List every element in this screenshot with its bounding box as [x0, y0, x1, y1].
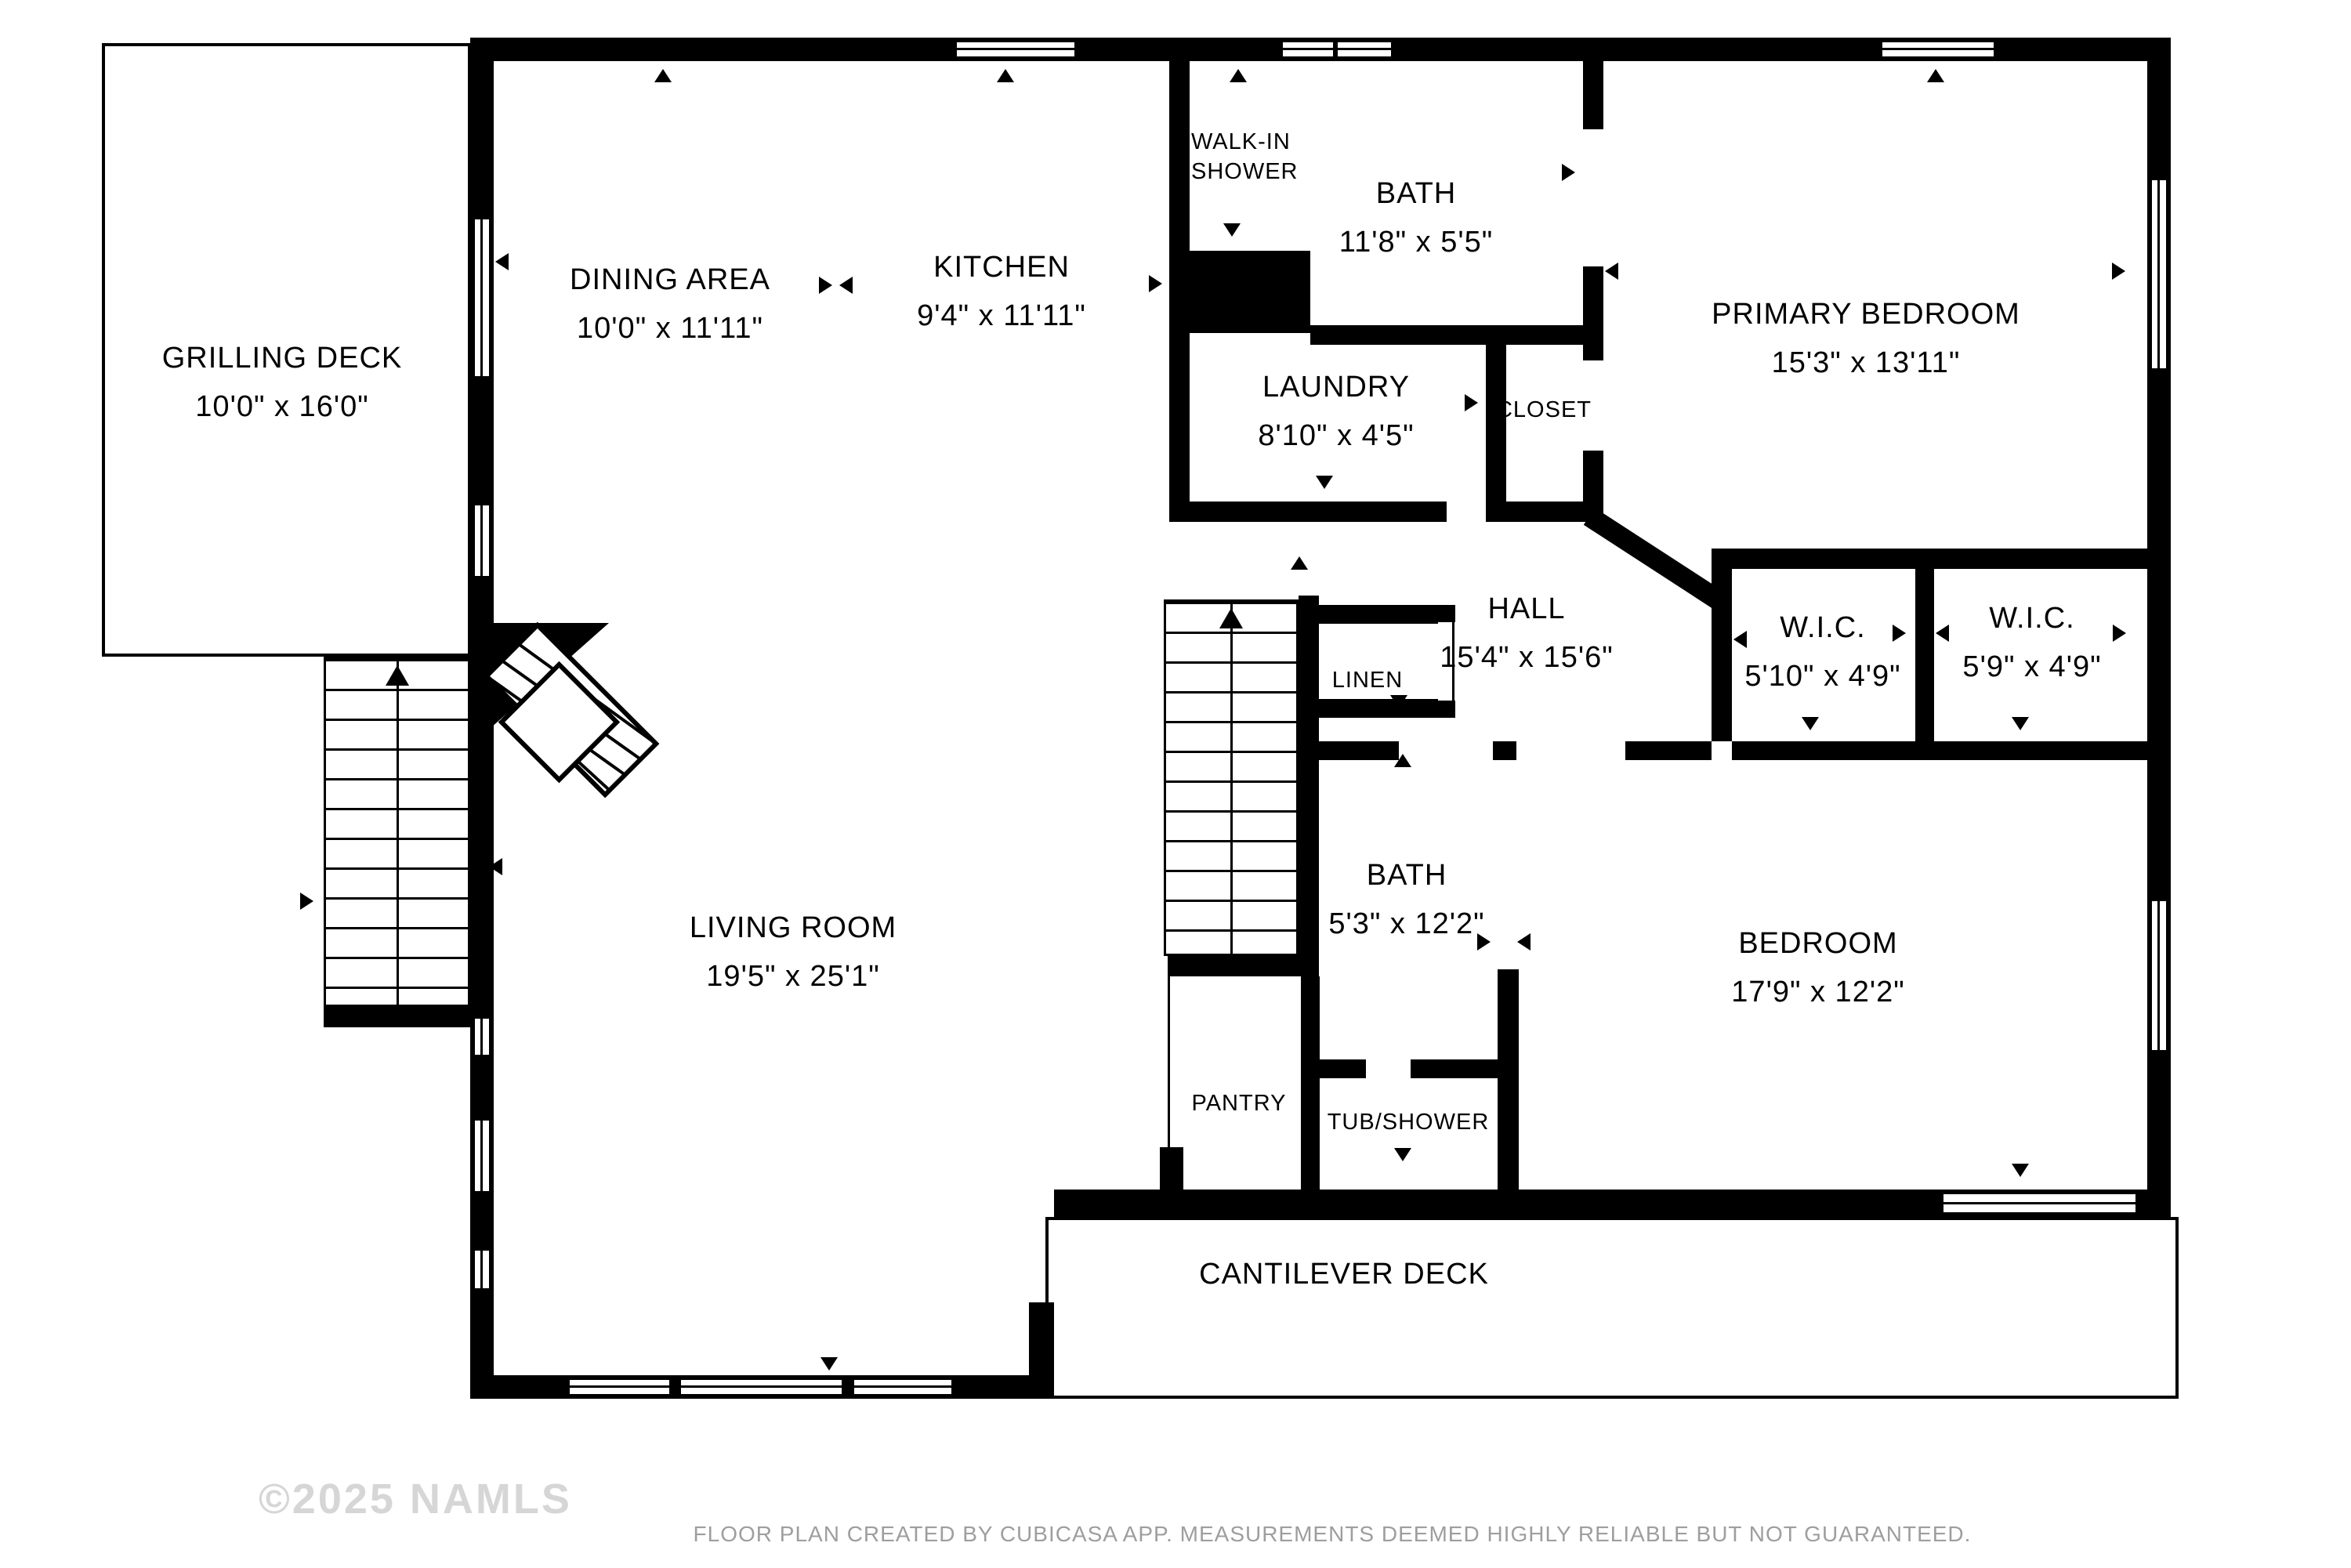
door-marker: [2113, 625, 2126, 642]
wall: [1732, 741, 2147, 760]
wall: [1498, 969, 1519, 1190]
room-dims: 5'9" x 4'9": [1962, 643, 2101, 691]
door-marker: [820, 1357, 838, 1371]
window: [473, 219, 491, 376]
window: [2150, 901, 2168, 1050]
wall: [1411, 1059, 1498, 1078]
wall: [1310, 325, 1585, 345]
room-label-bath-upper: BATH 11'8" x 5'5": [1339, 169, 1493, 266]
wall: [1319, 1059, 1366, 1078]
room-label-bath-lower: BATH 5'3" x 12'2": [1328, 851, 1484, 948]
room-name: WALK-IN: [1191, 127, 1299, 157]
stair-up-arrow: [386, 665, 409, 686]
door-marker: [1936, 625, 1949, 642]
room-label-tub-shower: TUB/SHOWER: [1328, 1107, 1490, 1137]
window: [1338, 40, 1391, 59]
room-name: CLOSET: [1496, 395, 1592, 425]
door-marker: [1517, 933, 1531, 951]
door-marker: [2012, 1164, 2029, 1177]
sliding-door: [1943, 1192, 2135, 1215]
room-name: DINING AREA: [570, 255, 770, 304]
footer-disclaimer: FLOOR PLAN CREATED BY CUBICASA APP. MEAS…: [694, 1522, 1972, 1547]
room-label-wic-1: W.I.C. 5'10" x 4'9": [1744, 603, 1900, 701]
wall: [1168, 956, 1319, 976]
door-marker: [1390, 695, 1407, 708]
door-marker: [1149, 275, 1162, 292]
room-dims: 8'10" x 4'5": [1258, 411, 1414, 460]
room-name: TUB/SHOWER: [1328, 1107, 1490, 1137]
room-label-hall: HALL 15'4" x 15'6": [1440, 585, 1613, 682]
door-marker: [1230, 69, 1247, 82]
wall: [1732, 549, 2147, 569]
wall: [1915, 569, 1934, 741]
wall: [1301, 976, 1320, 1190]
stair-up-arrow: [1219, 608, 1243, 628]
wall: [1169, 502, 1447, 522]
room-dims: 5'10" x 4'9": [1744, 652, 1900, 701]
room-dims: 10'0" x 16'0": [162, 382, 403, 431]
room-dims: 17'9" x 12'2": [1731, 968, 1904, 1016]
room-name: KITCHEN: [917, 243, 1086, 292]
door-marker: [2112, 263, 2125, 280]
room-label-living-room: LIVING ROOM 19'5" x 25'1": [690, 904, 897, 1001]
wall: [1712, 549, 1732, 741]
room-label-linen: LINEN: [1332, 665, 1403, 695]
room-name: BATH: [1339, 169, 1493, 218]
door-marker: [997, 69, 1014, 82]
wall: [324, 1007, 470, 1027]
room-label-closet: CLOSET: [1496, 395, 1592, 425]
wall: [1319, 699, 1438, 718]
wall: [1319, 605, 1438, 624]
door-marker: [1394, 1148, 1411, 1161]
wall: [1493, 741, 1516, 760]
room-label-kitchen: KITCHEN 9'4" x 11'11": [917, 243, 1086, 340]
room-name: LAUNDRY: [1258, 363, 1414, 411]
door-marker: [1927, 69, 1944, 82]
room-dims: 11'8" x 5'5": [1339, 218, 1493, 266]
room-name: SHOWER: [1191, 157, 1299, 186]
wall: [1169, 61, 1190, 257]
door-marker: [1291, 556, 1308, 570]
wall: [1319, 741, 1399, 760]
room-name: PANTRY: [1192, 1088, 1287, 1118]
room-dims: 5'3" x 12'2": [1328, 900, 1484, 948]
window: [2150, 180, 2168, 368]
room-name: LINEN: [1332, 665, 1403, 695]
cantilever-deck-outline: [1045, 1217, 2179, 1399]
room-label-primary-bedroom: PRIMARY BEDROOM 15'3" x 13'11": [1712, 290, 2020, 387]
door-marker: [1223, 223, 1241, 237]
room-dims: 15'4" x 15'6": [1440, 633, 1613, 682]
door-marker: [819, 277, 832, 294]
room-name: HALL: [1440, 585, 1613, 633]
door-marker: [489, 858, 502, 875]
window: [473, 1251, 491, 1288]
staircase-left: [324, 657, 470, 1007]
wall: [1299, 596, 1319, 956]
room-name: W.I.C.: [1962, 594, 2101, 643]
room-name: GRILLING DECK: [162, 334, 403, 382]
watermark: ©2025 NAMLS: [259, 1475, 572, 1523]
door-marker: [1605, 263, 1618, 280]
room-name: LIVING ROOM: [690, 904, 897, 952]
staircase-middle: [1164, 599, 1299, 956]
door-marker: [300, 893, 313, 910]
room-name: W.I.C.: [1744, 603, 1900, 652]
door-marker: [1562, 164, 1575, 181]
room-dims: 9'4" x 11'11": [917, 292, 1086, 340]
room-label-bedroom: BEDROOM 17'9" x 12'2": [1731, 919, 1904, 1016]
door-marker: [1172, 162, 1186, 179]
door-marker: [1316, 476, 1333, 489]
room-label-wic-2: W.I.C. 5'9" x 4'9": [1962, 594, 2101, 691]
room-dims: 10'0" x 11'11": [570, 304, 770, 353]
window: [1283, 40, 1333, 59]
room-name: CANTILEVER DECK: [1199, 1250, 1489, 1298]
window: [957, 40, 1074, 59]
window: [473, 1121, 491, 1191]
room-label-pantry: PANTRY: [1192, 1088, 1287, 1118]
room-name: BEDROOM: [1731, 919, 1904, 968]
door-marker: [2012, 717, 2029, 730]
door-marker: [1394, 754, 1411, 767]
window: [473, 1019, 491, 1055]
room-name: PRIMARY BEDROOM: [1712, 290, 2020, 339]
room-name: BATH: [1328, 851, 1484, 900]
window: [854, 1378, 951, 1396]
floor-plan: GRILLING DECK 10'0" x 16'0" DINING AREA …: [0, 0, 2351, 1568]
wall: [1583, 266, 1603, 360]
wall: [1625, 741, 1712, 760]
door-marker: [839, 277, 853, 294]
door-marker: [1465, 394, 1478, 411]
stair-center-line: [397, 659, 399, 1005]
wall-exterior-corner: [1029, 1302, 1054, 1399]
door-marker: [654, 69, 672, 82]
wall: [1486, 345, 1506, 522]
wall: [1160, 1147, 1183, 1190]
door-marker: [495, 253, 509, 270]
room-label-cantilever-deck: CANTILEVER DECK: [1199, 1250, 1489, 1298]
room-dims: 19'5" x 25'1": [690, 952, 897, 1001]
room-label-walk-in-shower: WALK-IN SHOWER: [1191, 127, 1299, 186]
window: [570, 1378, 669, 1396]
fireplace: [468, 619, 679, 831]
door-marker: [1303, 935, 1317, 952]
room-label-dining-area: DINING AREA 10'0" x 11'11": [570, 255, 770, 353]
window: [473, 505, 491, 576]
wall: [1583, 61, 1603, 129]
stair-center-line: [1230, 602, 1233, 954]
window: [681, 1378, 842, 1396]
room-label-laundry: LAUNDRY 8'10" x 4'5": [1258, 363, 1414, 460]
wall: [1169, 333, 1190, 522]
room-label-grilling-deck: GRILLING DECK 10'0" x 16'0": [162, 334, 403, 431]
wall-mass-shower: [1169, 251, 1310, 333]
door-marker: [1802, 717, 1819, 730]
window: [1882, 40, 1994, 59]
wall: [1506, 502, 1583, 522]
room-dims: 15'3" x 13'11": [1712, 339, 2020, 387]
